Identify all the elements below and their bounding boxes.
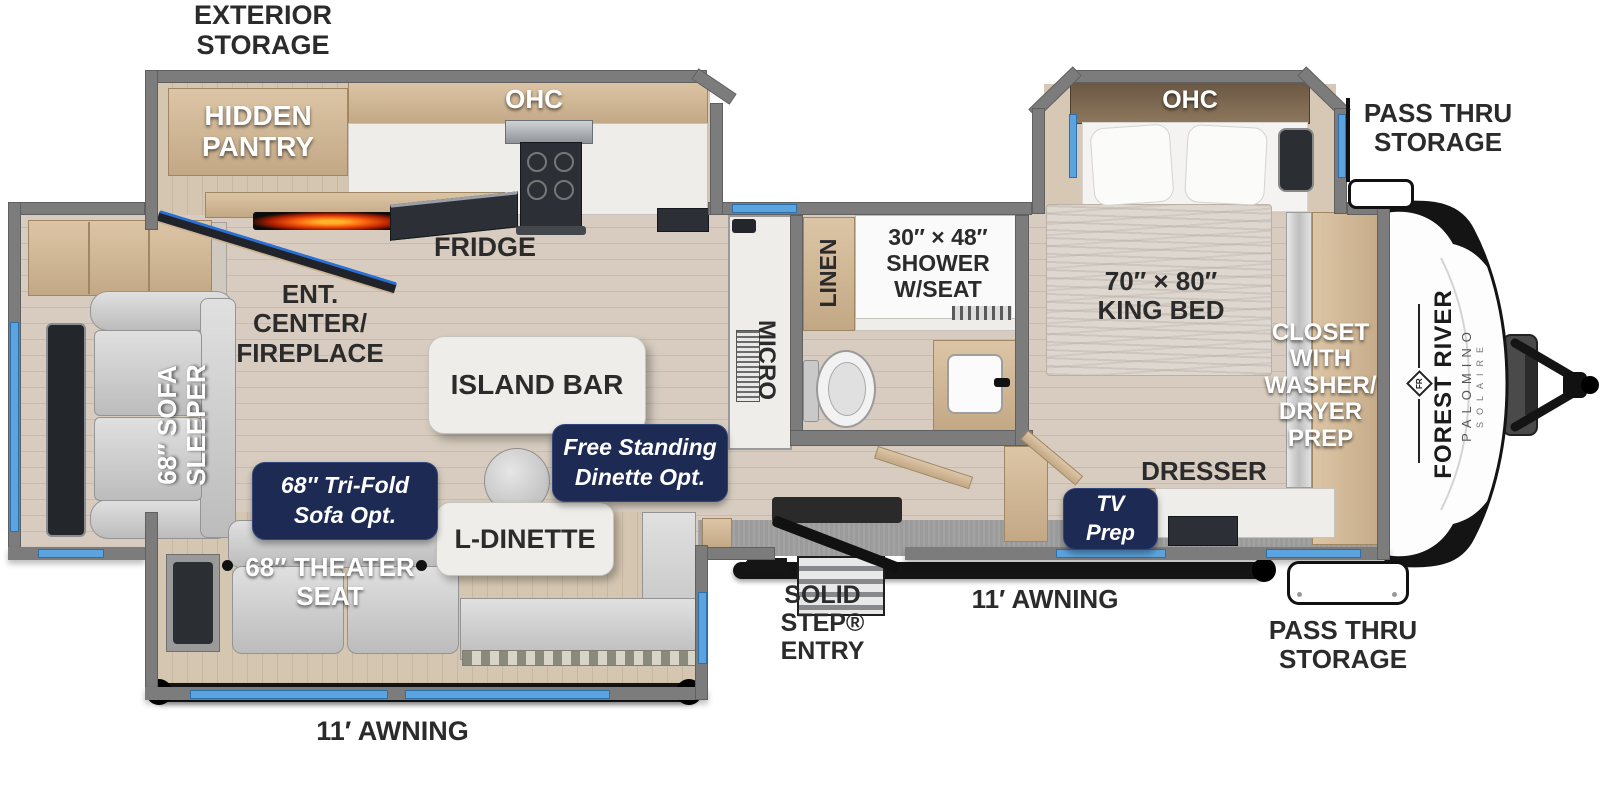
pass-thru-top-leader-line <box>1346 98 1350 182</box>
bedroom-door-cabinet <box>1004 446 1048 542</box>
dresser-label: DRESSER <box>1133 458 1275 486</box>
entry-landing <box>772 497 902 523</box>
pass-thru-hatch-bottom <box>1287 561 1409 605</box>
ent-center-label: ENT. CENTER/ FIREPLACE <box>225 276 395 372</box>
wall-top-rear <box>8 202 145 215</box>
end-table <box>702 518 732 548</box>
pillow-left <box>1089 123 1174 206</box>
dresser-tv-cabinet <box>1168 516 1238 546</box>
bottom-window-2 <box>1266 549 1361 558</box>
rear-ohc-divider-2 <box>148 222 150 294</box>
awning-cap-door-side <box>1252 558 1276 582</box>
pillow-right <box>1184 124 1268 206</box>
micro-label: MICRO <box>746 300 786 420</box>
fridge-label: FRIDGE <box>425 233 545 261</box>
rear-ohc-divider-1 <box>88 222 90 294</box>
hatch-screw-right <box>1392 592 1397 597</box>
tv-prep-badge: TV Prep <box>1063 488 1158 550</box>
king-bed-label: 70″ × 80″ KING BED <box>1093 256 1229 336</box>
tri-fold-sofa-badge: 68″ Tri-Fold Sofa Opt. <box>252 462 438 540</box>
logo-model: PALOMINO <box>1459 326 1474 442</box>
kitchen-slide-wall-left <box>145 70 158 230</box>
slide-end-window <box>173 562 213 644</box>
free-standing-dinette-badge: Free Standing Dinette Opt. <box>552 424 728 502</box>
bedroom-slide-wall-left <box>1032 108 1045 214</box>
bedroom-slide-window <box>1278 128 1314 192</box>
awning-label-off-door-side: 11′ AWNING <box>295 715 490 747</box>
recline-dot-right <box>416 560 427 571</box>
kitchen-ohc-label: OHC <box>498 84 570 114</box>
hidden-pantry-label: HIDDEN PANTRY <box>182 96 334 168</box>
bath-wall-right <box>1015 215 1029 446</box>
logo-line-right <box>1418 305 1420 369</box>
rear-tv <box>46 323 86 537</box>
exterior-storage-label: EXTERIOR STORAGE <box>168 0 358 60</box>
bedroom-ohc-label: OHC <box>1152 86 1228 116</box>
rear-ohc-cabinet <box>28 220 212 296</box>
slide-right-window <box>698 592 707 664</box>
counter-appliance <box>732 219 756 233</box>
logo-series: SOLAIRE <box>1475 340 1485 428</box>
island-bar-label: ISLAND BAR <box>438 346 636 424</box>
corner-cabinet <box>657 208 709 232</box>
sofa-sleeper-label: 68″ SOFA SLEEPER <box>145 343 219 507</box>
slide-bottom-window-2 <box>405 690 610 699</box>
stove-burner-3 <box>527 180 547 200</box>
l-dinette-label: L-DINETTE <box>444 510 606 568</box>
slide-bottom-window-1 <box>190 690 388 699</box>
hatch-screw-left <box>1297 592 1302 597</box>
recline-dot-left <box>222 560 233 571</box>
bedroom-slide-wall-top <box>1070 70 1310 83</box>
fr-monogram-icon: FR <box>1406 371 1433 398</box>
stove-burner-2 <box>554 152 574 172</box>
dinette-cushion-striped <box>462 650 696 666</box>
closet-label: CLOSET WITH WASHER/ DRYER PREP <box>1248 310 1393 462</box>
shower-label: 30″ × 48″ SHOWER W/SEAT <box>862 222 1014 306</box>
stove-burner-1 <box>527 152 547 172</box>
bottom-window-1 <box>1056 549 1166 558</box>
bedroom-window-right <box>1338 114 1346 178</box>
pass-thru-storage-bottom-label: PASS THRU STORAGE <box>1243 612 1443 678</box>
brand-logo: FR FOREST RIVER PALOMINO SOLAIRE <box>1402 219 1492 549</box>
pass-thru-storage-top-label: PASS THRU STORAGE <box>1352 96 1524 160</box>
floorplan-canvas: EXTERIOR STORAGE PASS THRU STORAGE HIDDE… <box>0 0 1600 805</box>
bath-wall-bottom <box>790 430 1033 446</box>
linen-label: LINEN <box>814 223 844 323</box>
theater-seat-label: 68″ THEATER SEAT <box>238 550 422 614</box>
kitchen-slide-wall-top <box>145 70 707 83</box>
toilet-seat <box>828 362 866 416</box>
dinette-slide-wall-left <box>145 512 158 700</box>
bath-wall-left <box>790 215 803 446</box>
bath-faucet <box>994 378 1010 387</box>
bedroom-window-left <box>1069 114 1077 178</box>
rear-bottom-window <box>38 549 104 558</box>
logo-ornament: FR <box>1410 305 1429 464</box>
awning-label-door-side: 11′ AWNING <box>960 585 1130 615</box>
fireplace <box>253 212 409 230</box>
stove-burner-4 <box>554 180 574 200</box>
shower-drain-grate <box>952 306 1012 320</box>
kitchen-slide-wall-right <box>710 103 723 215</box>
awning-bracket <box>745 558 787 573</box>
kitchen-top-window <box>732 204 797 213</box>
rear-wall-window <box>10 322 19 532</box>
pass-thru-hatch-top <box>1348 179 1414 209</box>
solid-step-entry-label: SOLID STEP® ENTRY <box>740 592 905 654</box>
logo-brand: FOREST RIVER <box>1430 289 1458 478</box>
range-hood <box>505 120 593 144</box>
logo-line-left <box>1418 400 1420 464</box>
